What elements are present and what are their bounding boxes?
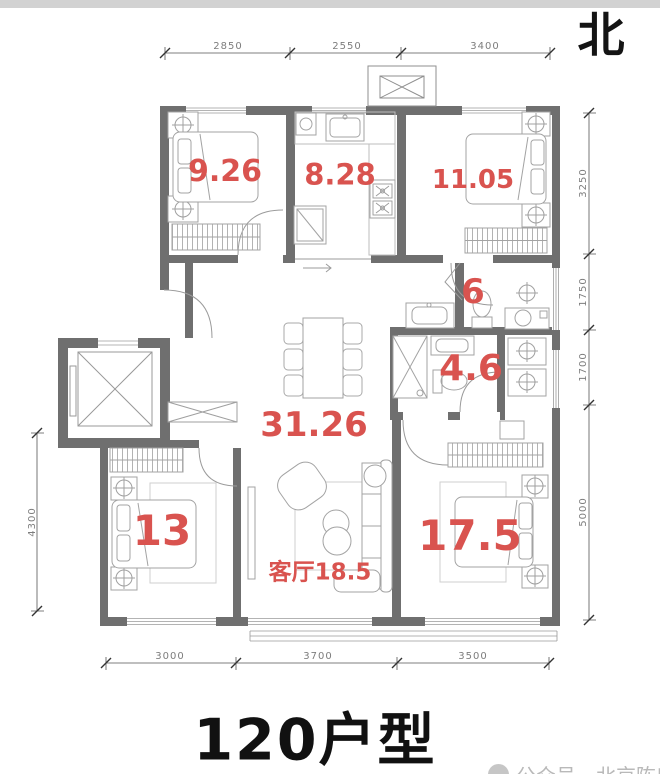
- area-label-bedroom-se: 17.5: [418, 515, 522, 557]
- dim-right-4: 5000: [579, 497, 589, 526]
- watermark: 公众号—北京陈房子: [488, 760, 660, 774]
- watermark-logo-icon: [488, 764, 509, 774]
- dim-bottom-3: 3500: [458, 652, 487, 662]
- dim-right-3: 1700: [579, 352, 589, 381]
- dim-right-1: 3250: [579, 168, 589, 197]
- dining-table: [284, 318, 362, 398]
- area-label-bathroom-north: 6: [461, 275, 485, 309]
- plan-title: 120户型: [194, 713, 437, 770]
- duct-shaft: [368, 66, 436, 106]
- dim-top-3: 3400: [470, 42, 499, 52]
- area-label-bedroom-nw: 9.26: [188, 157, 262, 187]
- dim-bottom-1: 3000: [155, 652, 184, 662]
- north-compass: 北: [578, 13, 625, 60]
- area-label-bathroom-south: 4.6: [439, 351, 503, 387]
- area-label-dining-hall: 31.26: [260, 408, 368, 442]
- watermark-text: 公众号—北京陈房子: [516, 760, 660, 774]
- area-label-bedroom-ne: 11.05: [432, 167, 514, 193]
- dim-right-2: 1750: [579, 277, 589, 306]
- dim-bottom-2: 3700: [303, 652, 332, 662]
- floor-plan-page: 北 9.26 8.28 11.05 6 4.6 31.26 13 客厅18.5 …: [0, 0, 660, 774]
- dim-top-2: 2550: [332, 42, 361, 52]
- entry-cabinet: [168, 402, 237, 422]
- dim-left-1: 4300: [28, 507, 38, 536]
- bed-southeast: [440, 421, 548, 588]
- area-label-living-room: 客厅18.5: [269, 562, 372, 585]
- area-label-bedroom-sw: 13: [133, 510, 191, 552]
- area-label-kitchen: 8.28: [304, 161, 376, 190]
- elevator-shaft: [70, 338, 152, 426]
- dim-top-1: 2850: [213, 42, 242, 52]
